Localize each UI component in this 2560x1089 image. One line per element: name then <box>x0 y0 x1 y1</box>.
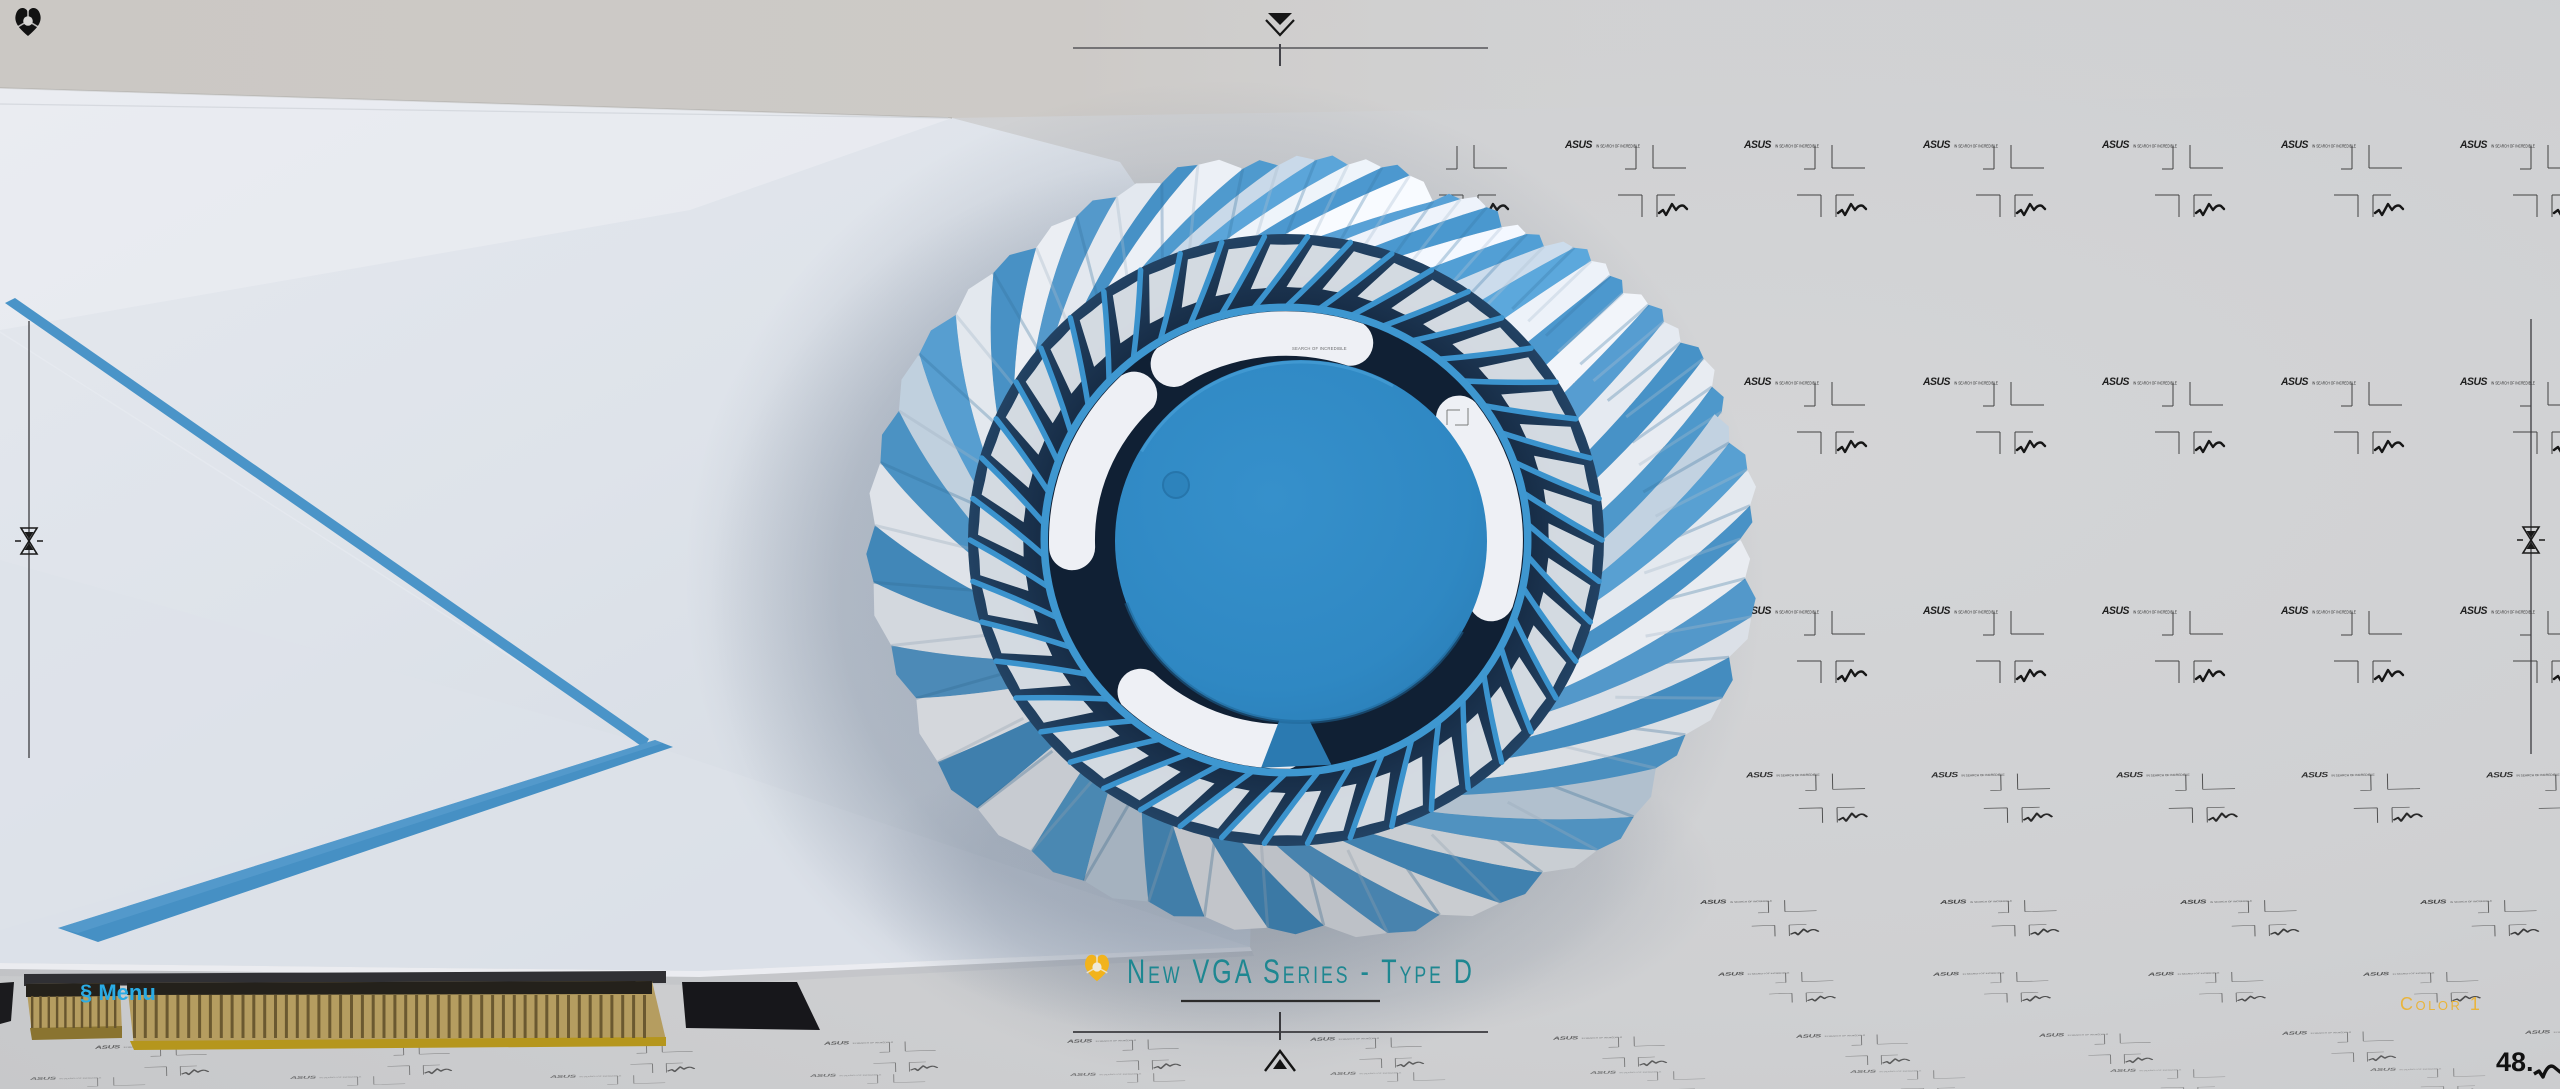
svg-text:Color 1: Color 1 <box>2400 994 2482 1014</box>
svg-text:New VGA Series - Type D: New VGA Series - Type D <box>1127 953 1475 991</box>
svg-text:48.: 48. <box>2496 1047 2534 1077</box>
svg-text:SEARCH OF INCREDIBLE: SEARCH OF INCREDIBLE <box>1292 346 1347 351</box>
svg-text:§ Menu: § Menu <box>80 980 156 1005</box>
